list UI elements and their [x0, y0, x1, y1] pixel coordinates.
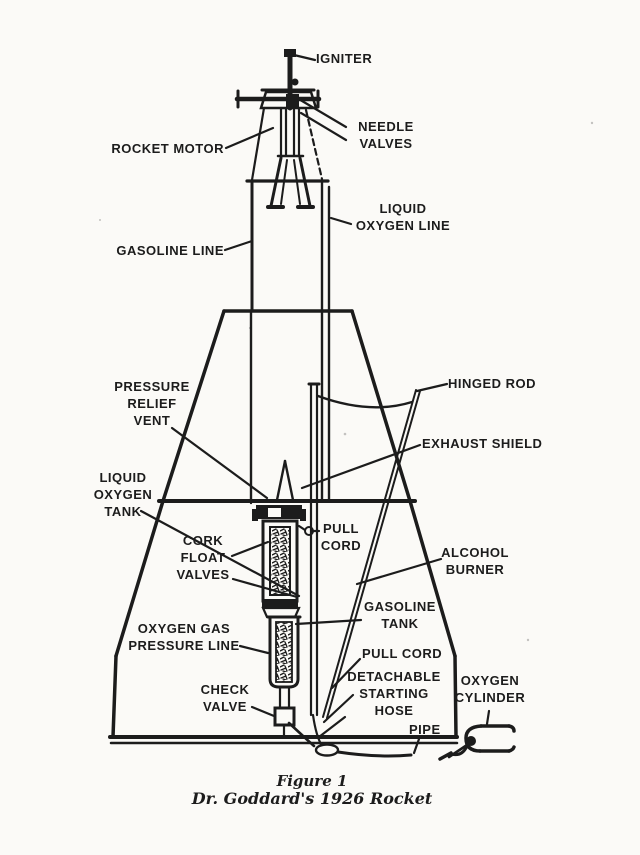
label-pressure-relief-vent: PRESSURE RELIEF VENT	[102, 378, 202, 429]
label-pull-cord-upper: PULL CORD	[319, 520, 363, 554]
label-oxygen-gas-pressure-line: OXYGEN GAS PRESSURE LINE	[128, 620, 240, 654]
lox-tank-cap	[252, 505, 306, 521]
label-detachable-starting-hose: DETACHABLE STARTING HOSE	[344, 668, 444, 719]
check-valve-box	[275, 708, 294, 736]
oxygen-cylinder-valve	[449, 726, 514, 757]
label-liquid-oxygen-line: LIQUID OXYGEN LINE	[352, 200, 454, 234]
label-cork-float-valves: CORK FLOAT VALVES	[153, 532, 253, 583]
label-exhaust-shield: EXHAUST SHIELD	[422, 435, 542, 452]
label-pipe: PIPE	[409, 721, 441, 738]
upper-casing	[247, 181, 329, 310]
cork-float-valve-tube	[262, 521, 299, 617]
label-liquid-oxygen-tank: LIQUID OXYGEN TANK	[73, 469, 173, 520]
figure-caption-number: Figure 1	[162, 772, 462, 790]
label-needle-valves: NEEDLE VALVES	[346, 118, 426, 152]
rocket-diagram	[0, 0, 640, 855]
label-igniter: IGNITER	[316, 50, 372, 67]
label-hinged-rod: HINGED ROD	[448, 375, 536, 392]
figure-caption-title: Dr. Goddard's 1926 Rocket	[132, 789, 492, 808]
needle-valve-crossbar	[237, 90, 319, 109]
rocket-motor-chamber	[278, 108, 303, 156]
label-oxygen-cylinder: OXYGEN CYLINDER	[440, 672, 540, 706]
label-rocket-motor: ROCKET MOTOR	[104, 140, 224, 157]
label-pull-cord-lower: PULL CORD	[362, 645, 442, 662]
pressure-relief-vent-cone	[277, 461, 293, 500]
label-check-valve: CHECK VALVE	[175, 681, 275, 715]
liquid-oxygen-line-pipe	[322, 311, 329, 500]
label-gasoline-line: GASOLINE LINE	[104, 242, 224, 259]
figure-page: IGNITER ROCKET MOTOR NEEDLE VALVES LIQUI…	[0, 0, 640, 855]
label-gasoline-tank: GASOLINE TANK	[349, 598, 451, 632]
label-alcohol-burner: ALCOHOL BURNER	[424, 544, 526, 578]
